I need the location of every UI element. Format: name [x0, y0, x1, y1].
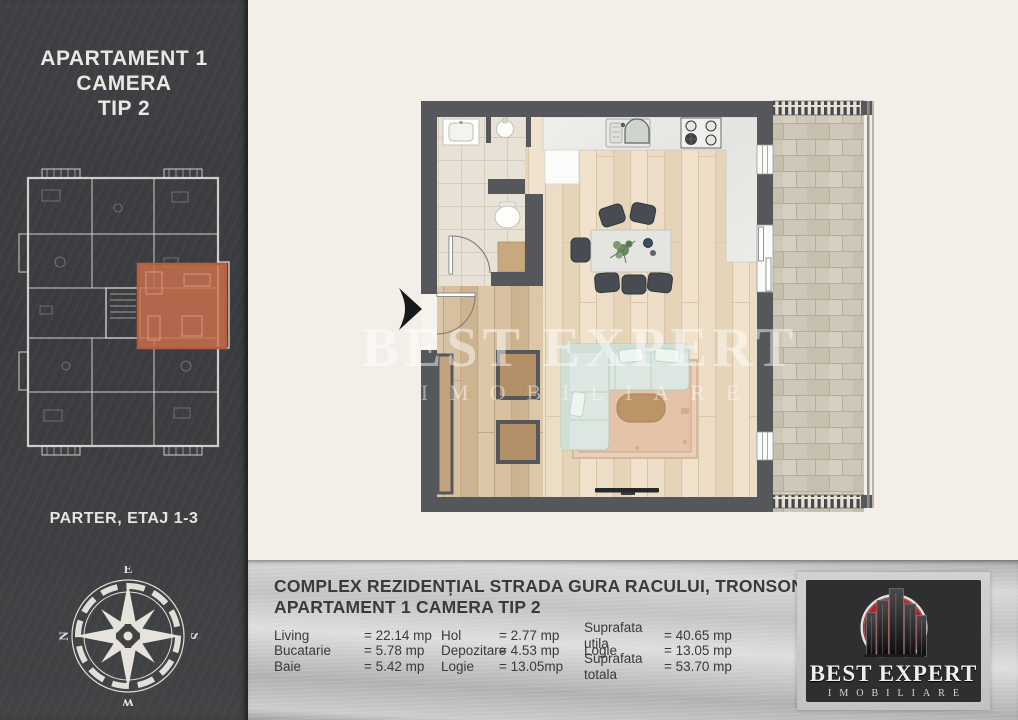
area-label: Living	[274, 628, 364, 644]
area-value: = 22.14 mp	[364, 628, 432, 644]
sidebar: APARTAMENT 1 CAMERA TIP 2	[0, 0, 248, 720]
area-value: = 5.78 mp	[364, 643, 424, 659]
dining-table	[591, 230, 671, 272]
area-row: Baie= 5.42 mp	[274, 659, 432, 675]
balcony-sliding-door	[757, 225, 773, 292]
compass-n: N	[58, 631, 71, 641]
area-value: = 4.53 mp	[499, 643, 559, 659]
apartment-type-line2: TIP 2	[0, 96, 248, 121]
shower-tray	[498, 242, 525, 272]
area-value: = 53.70 mp	[664, 659, 732, 675]
area-value: = 5.42 mp	[364, 659, 424, 675]
area-row: Suprafata totala= 53.70 mp	[584, 659, 732, 675]
kitchen-cabinet	[545, 150, 579, 184]
brand-name: BEST EXPERT	[806, 662, 981, 685]
area-value: = 2.77 mp	[499, 628, 559, 644]
brand-logo-box: BEST EXPERT IMOBILIARE	[806, 580, 981, 702]
project-title-line1: COMPLEX REZIDENȚIAL STRADA GURA RACULUI,…	[274, 576, 819, 597]
project-title-line2: APARTAMENT 1 CAMERA TIP 2	[274, 597, 819, 618]
compass-s: S	[188, 632, 198, 639]
kitchen-sink	[606, 119, 650, 147]
area-row: Living= 22.14 mp	[274, 628, 432, 644]
area-table-col1: Living= 22.14 mp Bucatarie= 5.78 mp Baie…	[274, 628, 432, 675]
info-panel: COMPLEX REZIDENȚIAL STRADA GURA RACULUI,…	[248, 560, 1018, 720]
compass-e: E	[124, 566, 133, 576]
area-value: = 40.65 mp	[664, 628, 732, 644]
area-label: Suprafata totala	[584, 651, 664, 683]
highlighted-apartment	[138, 264, 226, 348]
coffee-table	[617, 394, 665, 422]
building-overview-plan	[14, 166, 234, 458]
brand-logo: BEST EXPERT IMOBILIARE	[797, 572, 990, 710]
kitchen-window	[757, 145, 773, 174]
area-label: Logie	[441, 659, 499, 675]
balcony-floor	[773, 101, 864, 512]
area-label: Bucatarie	[274, 643, 364, 659]
brand-tagline: IMOBILIARE	[806, 688, 981, 699]
area-label: Baie	[274, 659, 364, 675]
floor-level-label: PARTER, ETAJ 1-3	[0, 510, 248, 528]
area-row: Logie= 13.05mp	[441, 659, 563, 675]
area-table-col2: Hol= 2.77 mp Depozitare= 4.53 mp Logie= …	[441, 628, 563, 675]
project-title: COMPLEX REZIDENȚIAL STRADA GURA RACULUI,…	[274, 576, 819, 617]
area-table-col3: Suprafata utila= 40.65 mp Logie= 13.05 m…	[584, 628, 732, 675]
entrance-arrow-icon	[399, 288, 422, 330]
living-window	[757, 432, 773, 460]
brand-emblem-icon	[836, 584, 952, 660]
compass-icon: N E S W	[58, 566, 198, 706]
area-row: Suprafata utila= 40.65 mp	[584, 628, 732, 644]
area-value: = 13.05mp	[499, 659, 563, 675]
compass-w: W	[122, 696, 135, 706]
area-value: = 13.05 mp	[664, 643, 732, 659]
apartment-type-title: APARTAMENT 1 CAMERA TIP 2	[0, 46, 248, 122]
area-row: Hol= 2.77 mp	[441, 628, 563, 644]
area-row: Depozitare= 4.53 mp	[441, 644, 563, 660]
apartment-type-line1: APARTAMENT 1 CAMERA	[0, 46, 248, 96]
stove	[681, 118, 721, 148]
floor-plan	[393, 92, 885, 522]
area-label: Depozitare	[441, 643, 499, 659]
area-label: Hol	[441, 628, 499, 644]
area-row: Bucatarie= 5.78 mp	[274, 644, 432, 660]
